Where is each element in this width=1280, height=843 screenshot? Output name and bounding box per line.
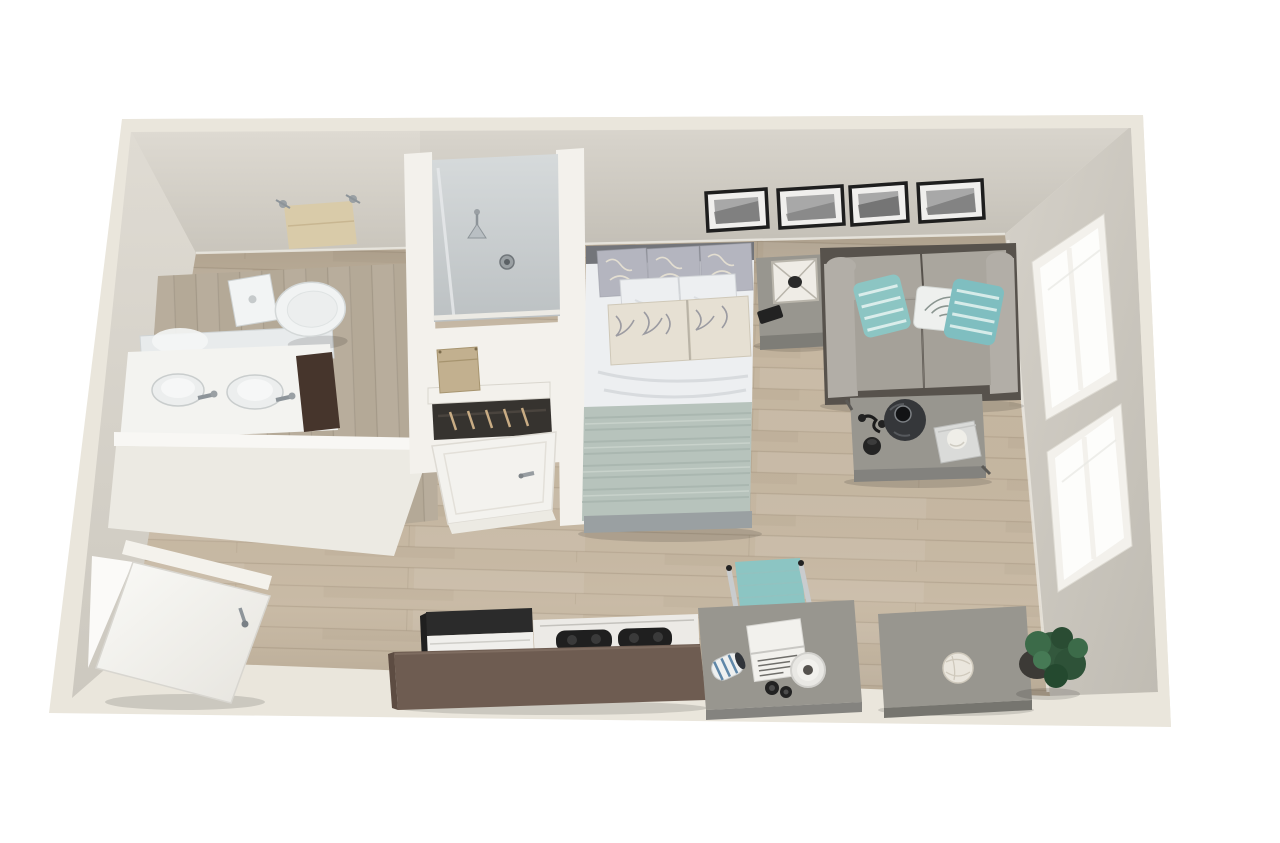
book-with-sphere xyxy=(934,421,981,463)
island-counter xyxy=(388,644,706,710)
interior-door-closed xyxy=(432,432,556,534)
bed xyxy=(578,242,762,542)
lantern xyxy=(772,259,818,303)
accent-pillows-swirl xyxy=(608,296,751,365)
framed-photo-2 xyxy=(778,186,844,228)
rope-ball xyxy=(943,653,973,683)
floorplan-svg xyxy=(0,0,1280,843)
storage-box xyxy=(437,347,480,393)
lantern-candle xyxy=(788,276,802,288)
refrigerator-top xyxy=(426,608,533,636)
sage-blanket xyxy=(582,402,752,521)
framed-photo-4 xyxy=(918,180,984,222)
bowl-item xyxy=(803,665,813,675)
desk xyxy=(698,600,862,720)
framed-photo-3 xyxy=(850,183,908,225)
floorplan-render xyxy=(0,0,1280,843)
shower-drain xyxy=(500,255,514,269)
dark-vase xyxy=(884,399,926,441)
white-bowl xyxy=(791,653,825,687)
interior-door-leaf xyxy=(432,432,556,524)
vanity xyxy=(120,344,340,440)
kitchen xyxy=(388,608,707,715)
shower-stall xyxy=(432,154,560,322)
loveseat xyxy=(820,243,1024,414)
sofa-armrest-left xyxy=(824,262,858,398)
coffee-table xyxy=(844,394,992,488)
framed-photo-1 xyxy=(706,189,768,231)
